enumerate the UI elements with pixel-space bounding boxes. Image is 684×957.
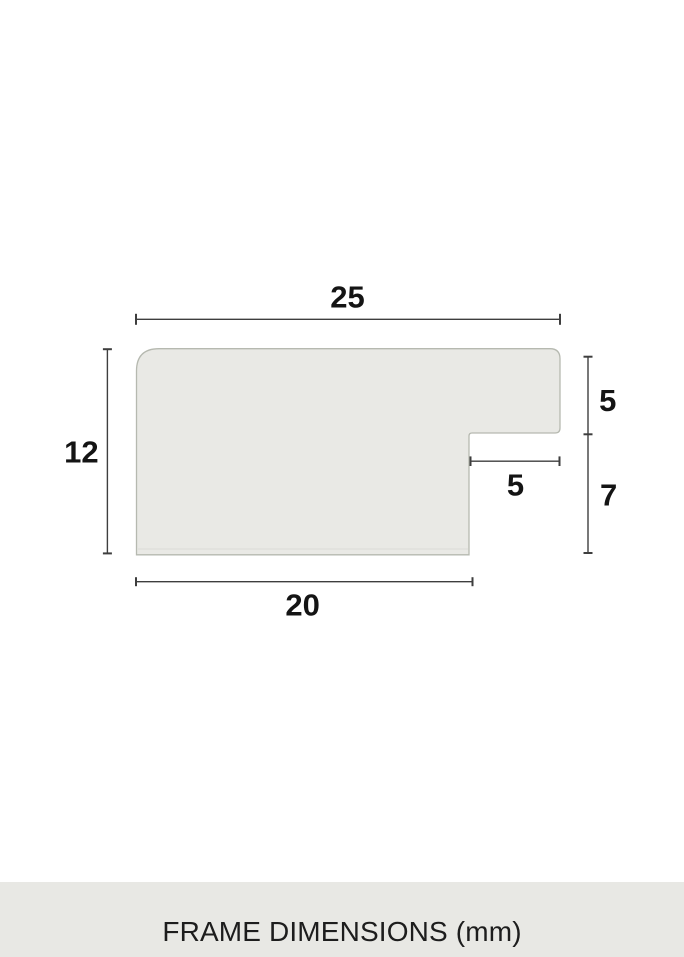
svg-text:25: 25 <box>330 280 364 315</box>
svg-text:5: 5 <box>507 468 524 503</box>
svg-text:12: 12 <box>64 435 98 470</box>
svg-text:7: 7 <box>600 477 617 512</box>
svg-text:20: 20 <box>285 588 319 623</box>
svg-text:5: 5 <box>599 383 616 418</box>
